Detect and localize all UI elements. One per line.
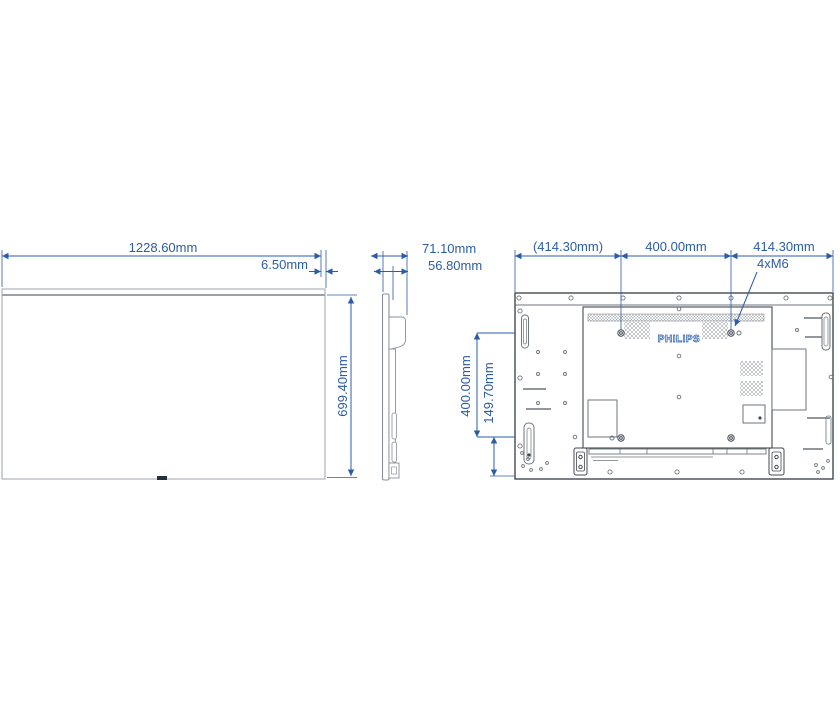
side-slot <box>392 442 397 462</box>
front-view <box>2 289 325 480</box>
vent-grille <box>740 381 763 396</box>
drawing-linework <box>0 0 840 720</box>
side-depth-total-dimension-label: 71.10mm <box>422 242 476 256</box>
ir-sensor-mark <box>157 476 167 480</box>
vesa-vertical-dimension-label: 400.00mm <box>459 353 473 419</box>
philips-logo: PHILIPS <box>649 334 709 345</box>
technical-drawing-page: 1228.60mm 6.50mm 699.40mm 71.10mm 56.80m… <box>0 0 840 720</box>
vent-grille <box>624 322 650 339</box>
mount-screw-spec-label: 4xM6 <box>757 257 789 271</box>
front-bezel-dimension-label: 6.50mm <box>236 258 308 272</box>
rear-left-dimension-label: (414.30mm) <box>508 240 628 254</box>
rear-right-dimension-label: 414.30mm <box>724 240 840 254</box>
power-switch-dot <box>758 416 761 419</box>
side-view <box>383 294 406 480</box>
side-slot <box>392 413 397 439</box>
front-height-dimension-label: 699.40mm <box>336 341 350 431</box>
rear-center-dimension-label: 400.00mm <box>616 240 736 254</box>
side-depth-body-dimension-label: 56.80mm <box>428 259 482 273</box>
rear-view <box>515 293 833 479</box>
front-width-dimension-label: 1228.60mm <box>100 241 226 255</box>
wall-mount-hook <box>389 317 406 350</box>
vesa-bottom-offset-dimension-label: 149.70mm <box>482 360 496 426</box>
connector-panel <box>772 349 806 410</box>
vent-grille <box>740 361 763 376</box>
rear-cavity <box>583 307 772 448</box>
